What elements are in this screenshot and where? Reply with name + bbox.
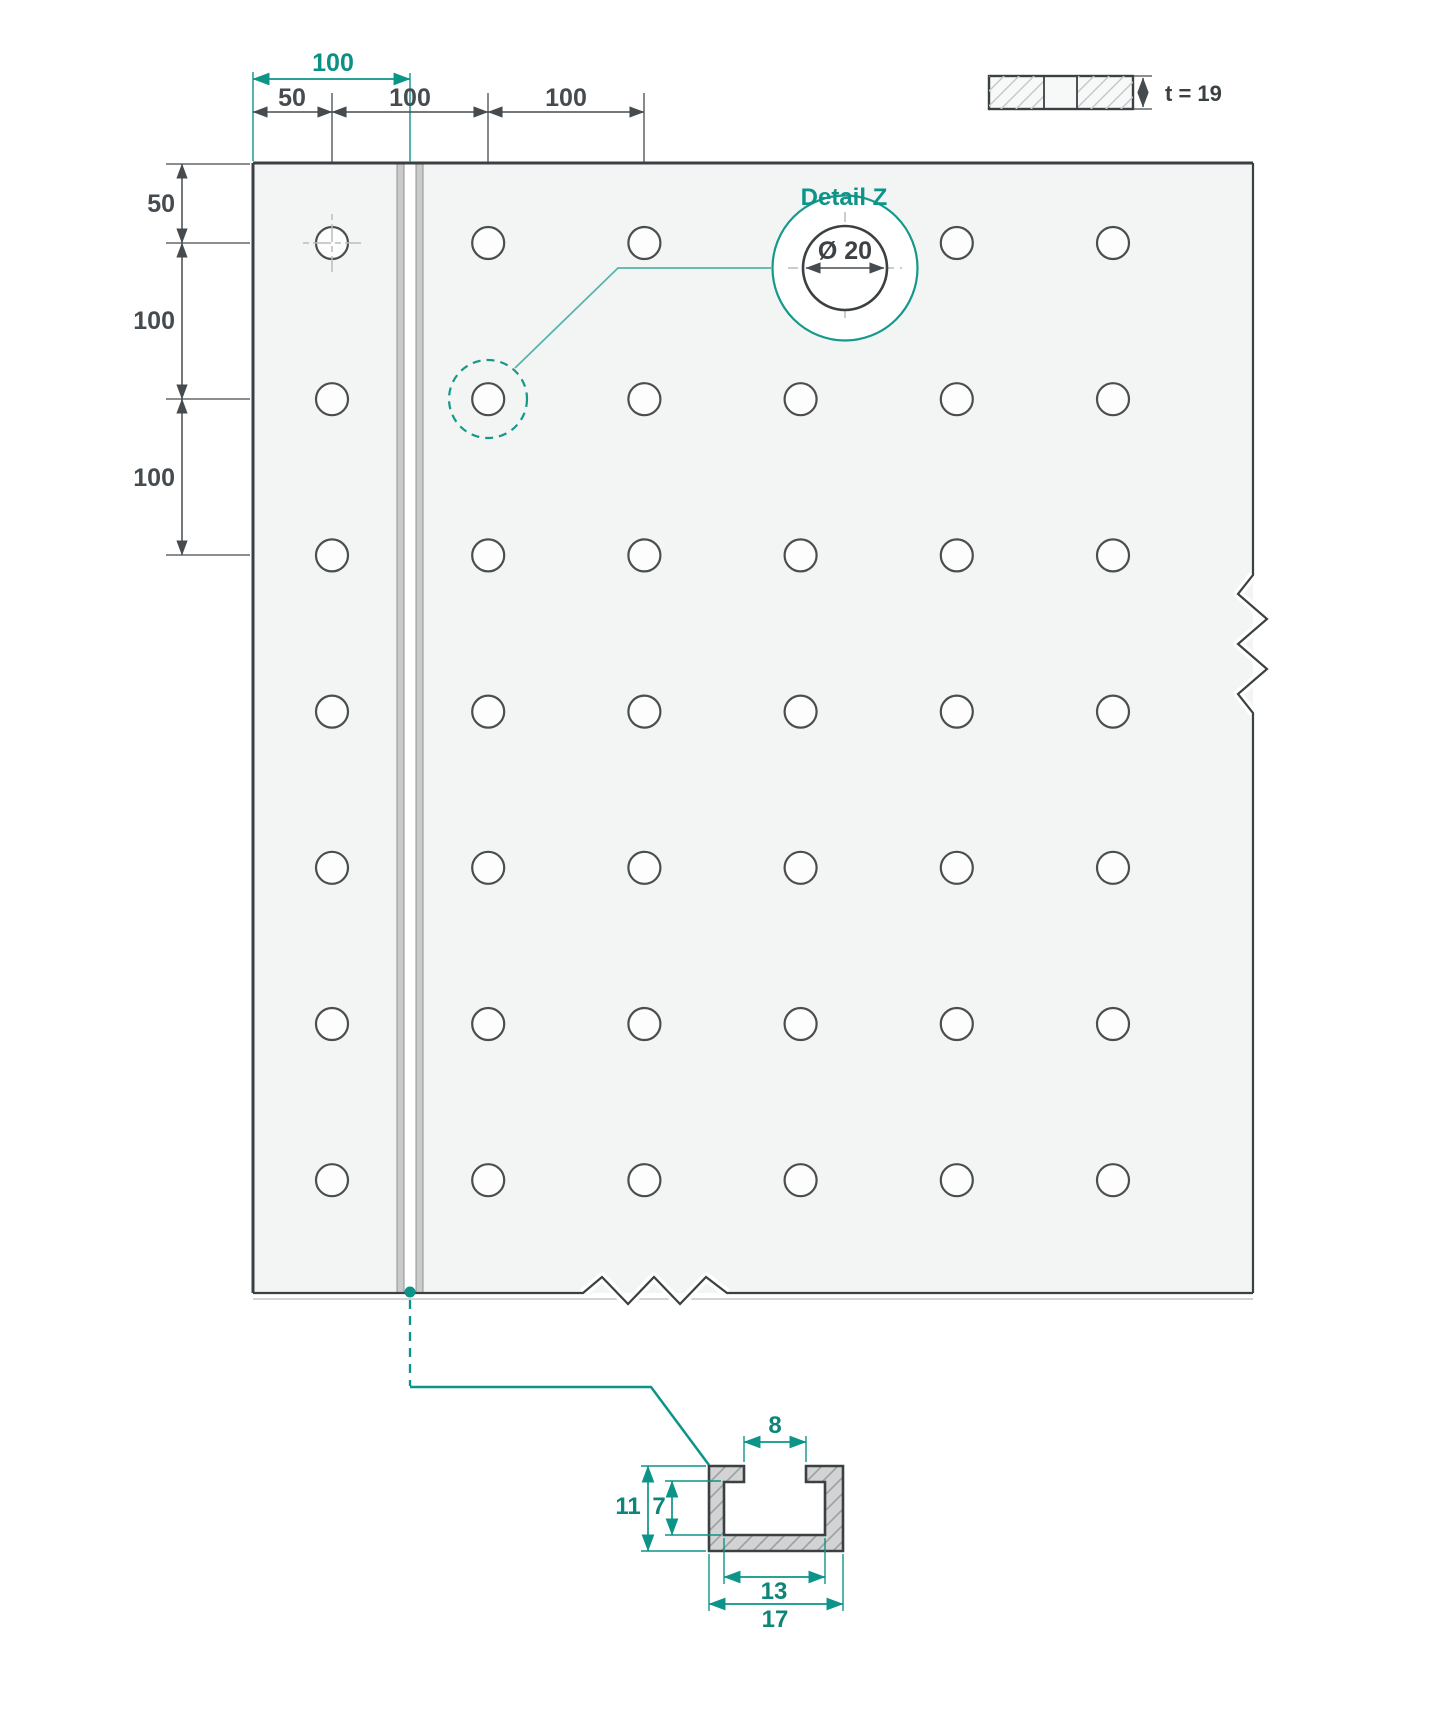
hole (472, 852, 504, 884)
drawing-svg: 100 50 100 100 50 100 100 t = 19 (0, 0, 1445, 1718)
hole (1097, 539, 1129, 571)
slot-profile (709, 1466, 843, 1551)
hole (785, 1008, 817, 1040)
hole (316, 696, 348, 728)
slot-band-left (397, 163, 404, 1293)
dim-cavity-height: 7 (652, 1493, 665, 1520)
hole (785, 1164, 817, 1196)
hole (785, 539, 817, 571)
hole (785, 383, 817, 415)
dim-outer-width: 17 (762, 1606, 789, 1633)
hole (628, 1008, 660, 1040)
dim-top-100b: 100 (545, 84, 587, 112)
detail-diameter-label: Ø 20 (818, 237, 872, 265)
dim-top-overall: 100 (312, 49, 354, 77)
plate (253, 163, 1267, 1304)
dim-left-100b: 100 (133, 464, 175, 492)
hole (1097, 1164, 1129, 1196)
technical-drawing-page: 100 50 100 100 50 100 100 t = 19 (0, 0, 1445, 1718)
hole (316, 1008, 348, 1040)
hole (472, 227, 504, 259)
t-slot-groove (397, 163, 423, 1293)
hole (1097, 383, 1129, 415)
dim-total-height: 11 (615, 1493, 640, 1520)
hole (1097, 1008, 1129, 1040)
dim-left-100a: 100 (133, 307, 175, 335)
dim-top-100a: 100 (389, 84, 431, 112)
dim-top-50: 50 (278, 84, 306, 112)
hole (1097, 227, 1129, 259)
hole (316, 852, 348, 884)
hole (785, 852, 817, 884)
thickness-label: t = 19 (1165, 81, 1222, 106)
hole (785, 696, 817, 728)
hole (1097, 852, 1129, 884)
hole (316, 1164, 348, 1196)
hole (1097, 696, 1129, 728)
hole (941, 1164, 973, 1196)
hole (941, 227, 973, 259)
hatch-right-cell (1077, 76, 1133, 109)
hole (941, 383, 973, 415)
left-dimensions: 50 100 100 (133, 164, 250, 555)
hole (941, 852, 973, 884)
hole (316, 539, 348, 571)
hole (316, 383, 348, 415)
hole (472, 1164, 504, 1196)
hole (628, 1164, 660, 1196)
dim-cavity-width: 13 (761, 1578, 788, 1605)
slot-band-right (416, 163, 423, 1293)
detail-title: Detail Z (801, 184, 888, 211)
dim-left-50: 50 (147, 190, 175, 218)
slot-profile-section: 8 11 7 13 17 (615, 1412, 843, 1633)
top-dimensions: 100 50 100 100 (253, 49, 644, 162)
hole (941, 539, 973, 571)
hole (472, 539, 504, 571)
hole (472, 1008, 504, 1040)
hole (628, 852, 660, 884)
leader-dot (405, 1287, 416, 1298)
hole (628, 227, 660, 259)
hole (941, 1008, 973, 1040)
hole (628, 383, 660, 415)
hole (628, 696, 660, 728)
dim-opening-width: 8 (768, 1412, 781, 1439)
hole (472, 696, 504, 728)
slot-section-leader (405, 1287, 710, 1466)
hatch-left-cell (989, 76, 1044, 109)
hole (628, 539, 660, 571)
thickness-section: t = 19 (989, 76, 1222, 109)
hole (941, 696, 973, 728)
hole (472, 383, 504, 415)
leader-solid (410, 1387, 709, 1465)
